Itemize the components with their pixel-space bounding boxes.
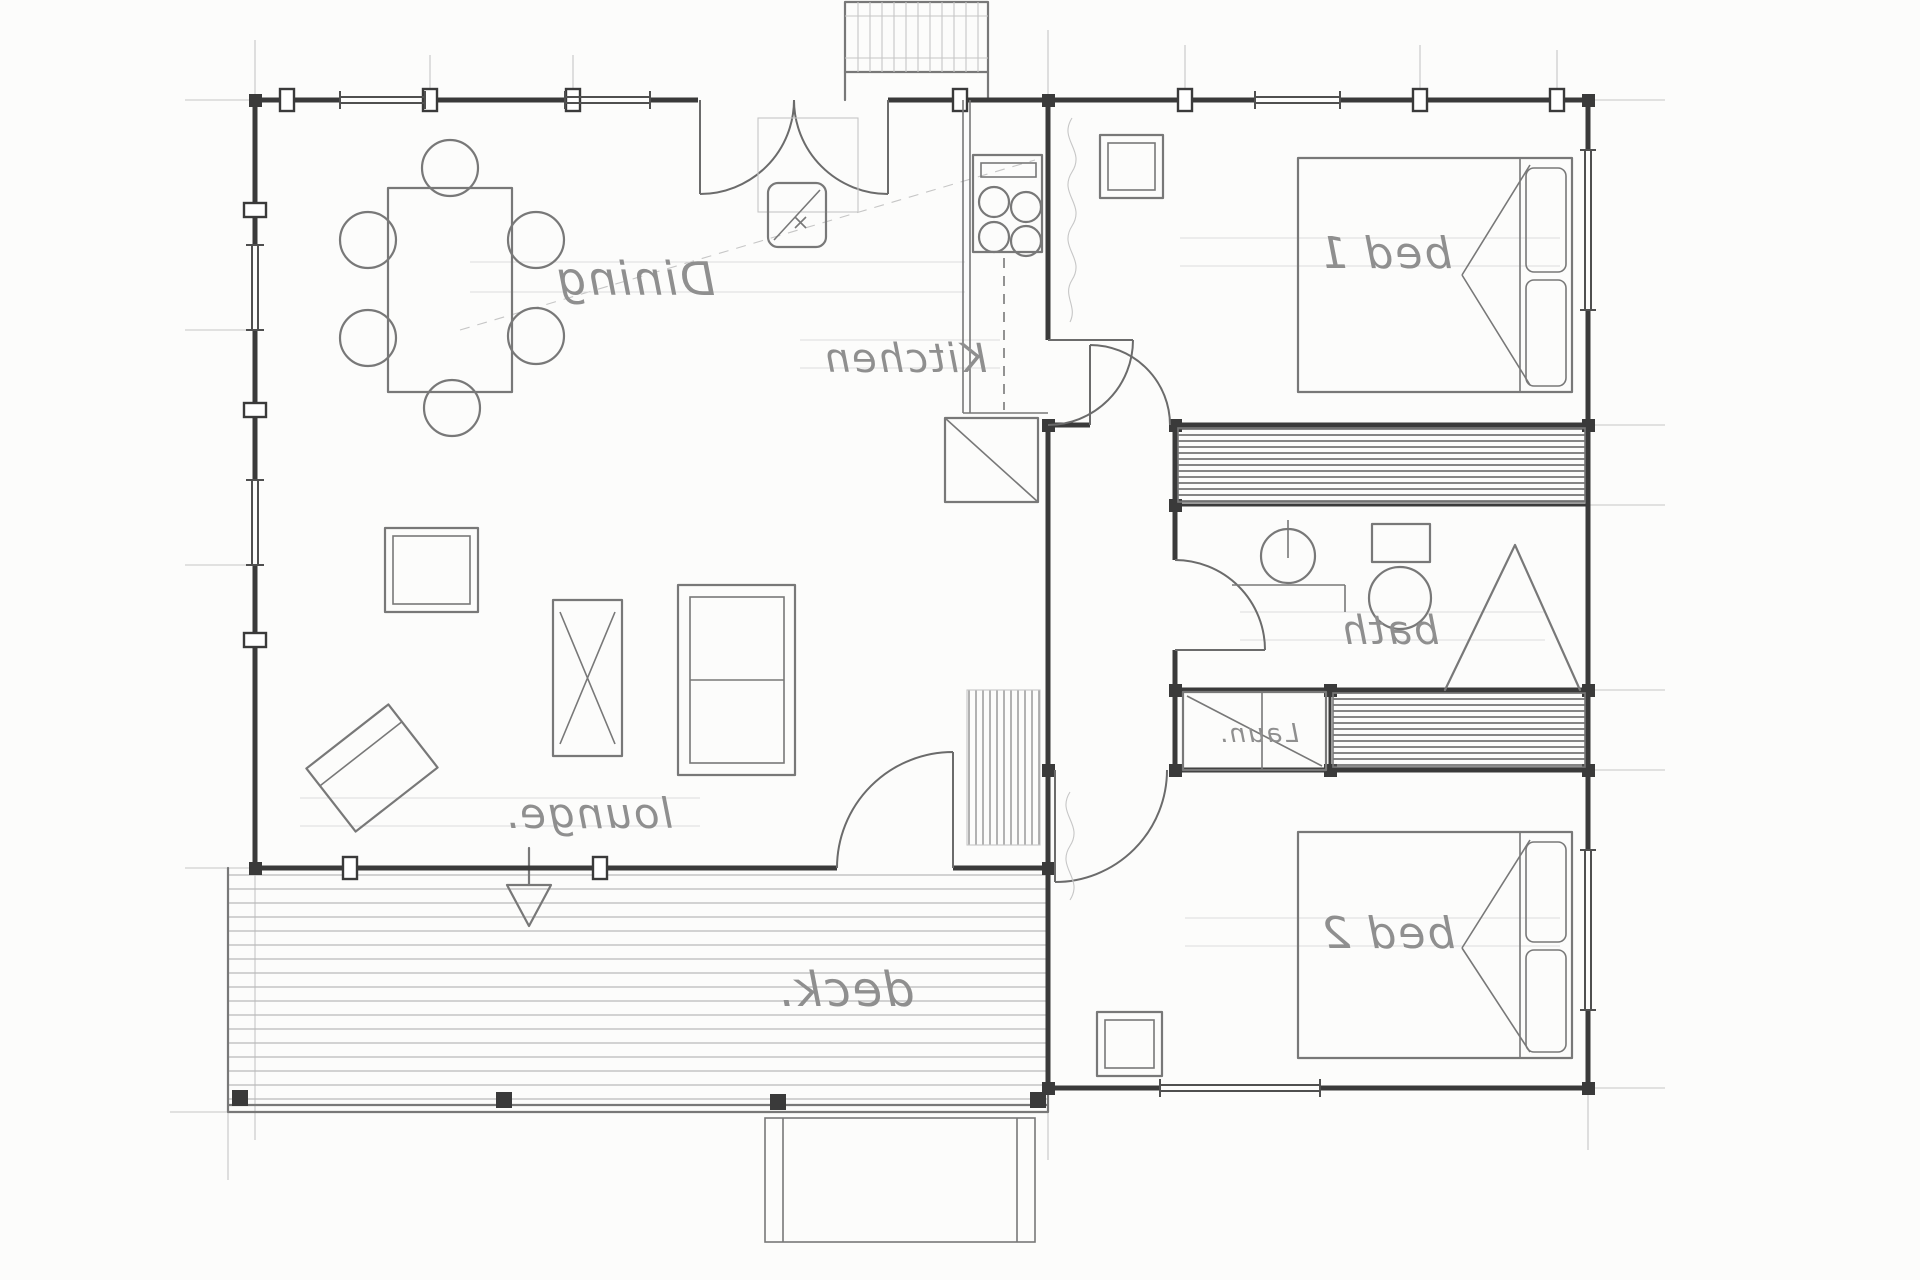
room-label-bed2: bed 2 — [1321, 908, 1456, 959]
room-label-lounge: lounge. — [503, 789, 673, 838]
room-label-kitchen: Kitchen — [823, 336, 987, 382]
deck-planks — [228, 868, 1048, 1112]
floor-plan-sketch: Dining Kitchen bed 1 bath Laun. lounge. … — [0, 0, 1920, 1280]
room-label-laundry: Laun. — [1217, 719, 1299, 749]
wardrobe-bed1 — [1178, 428, 1585, 502]
room-label-dining: Dining — [555, 252, 716, 306]
room-label-bath: bath — [1341, 608, 1440, 654]
room-label-deck: deck. — [775, 962, 914, 1018]
wardrobe-bed2 — [1333, 693, 1585, 767]
hall-screen-hatch — [967, 690, 1040, 845]
room-label-bed1: bed 1 — [1318, 228, 1453, 279]
